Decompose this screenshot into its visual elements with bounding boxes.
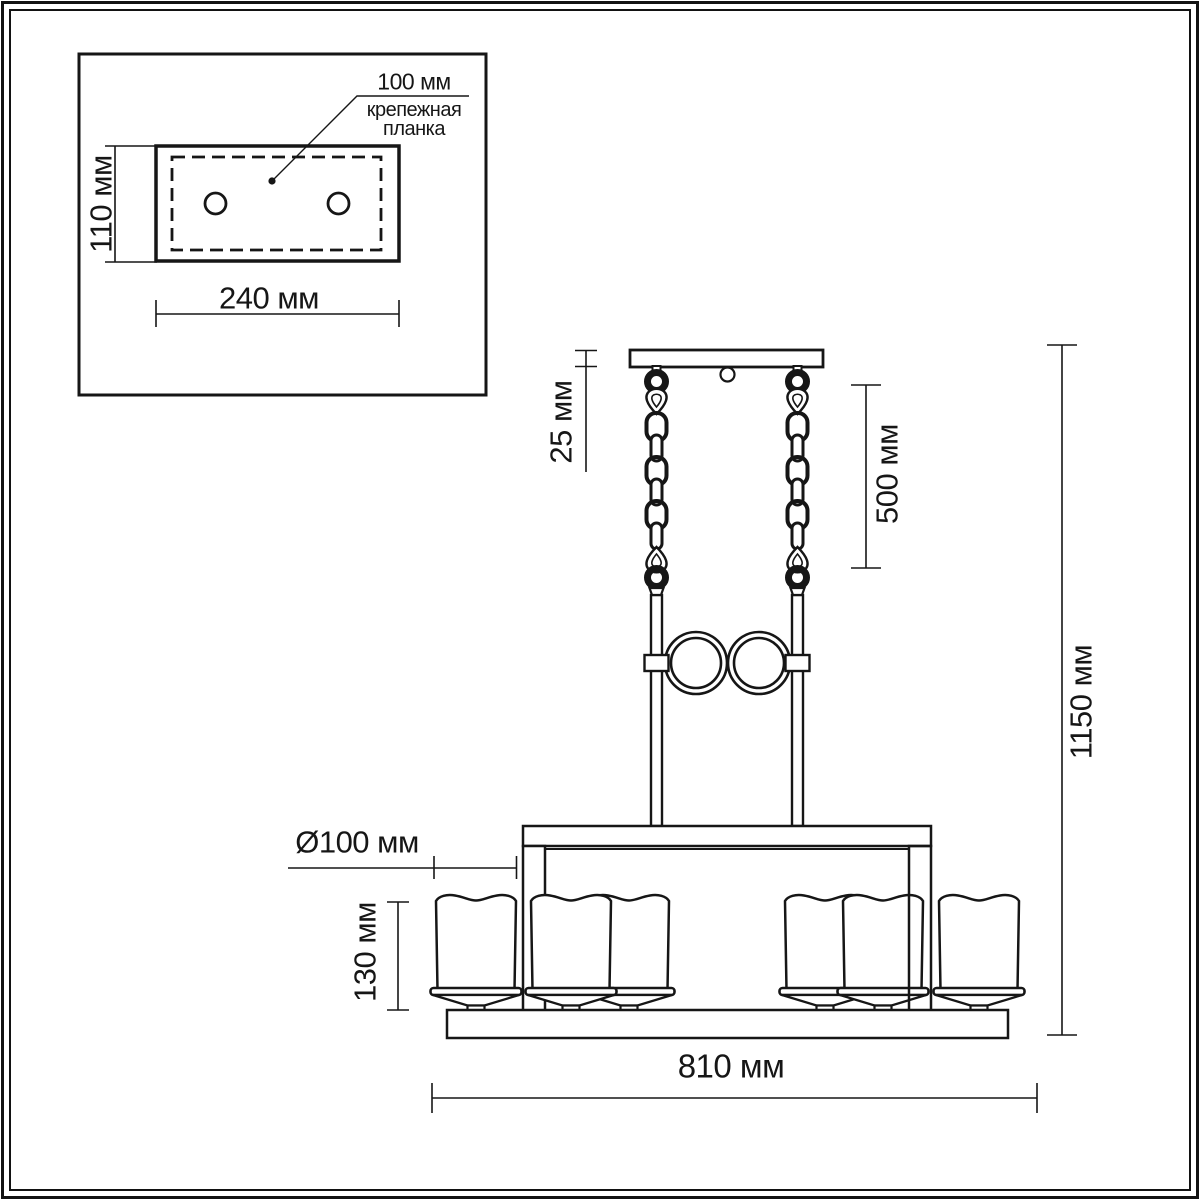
ceiling-canopy (630, 350, 823, 367)
shade-front-left (526, 895, 617, 1011)
chain-length-label: 500 мм (872, 424, 903, 524)
canopy-screw (721, 368, 735, 382)
decorative-rings (665, 632, 790, 694)
overall-width-label: 810 мм (678, 1050, 785, 1083)
mounting-plate-caption: крепежная планка (367, 101, 462, 139)
ring-bracket-right (786, 655, 810, 671)
overall-width-dimension (432, 1083, 1037, 1113)
hole-spacing-label: 100 мм (377, 71, 450, 94)
mounting-hole-left (205, 193, 226, 214)
overall-height-label: 1150 мм (1066, 645, 1097, 759)
chandelier-drawing (431, 350, 1025, 1038)
shade-height-dimension (387, 902, 409, 1010)
ring-bracket-left (645, 655, 669, 671)
shade-front-right (838, 895, 929, 1011)
shade-outer-left (431, 895, 522, 1011)
chain-assembly-left (646, 366, 666, 826)
chain-assembly-right (787, 366, 807, 826)
canopy-height-label: 25 мм (546, 380, 577, 463)
plate-height-label: 110 мм (86, 155, 117, 253)
frame-bottom-bar (447, 1010, 1008, 1038)
plate-width-label: 240 мм (219, 283, 319, 314)
shade-outer-right (934, 895, 1025, 1011)
technical-drawing-canvas (0, 0, 1200, 1200)
chandelier-dimension-drawing: 100 мм крепежная планка 110 мм 240 мм 25… (0, 0, 1200, 1200)
mounting-hole-right (328, 193, 349, 214)
mounting-plate-caption-line2: планка (367, 120, 462, 139)
mounting-plate-outline (156, 146, 399, 261)
shade-diameter-label: Ø100 мм (295, 827, 419, 858)
shade-height-label: 130 мм (350, 902, 381, 1002)
frame-top-bar (523, 826, 931, 846)
